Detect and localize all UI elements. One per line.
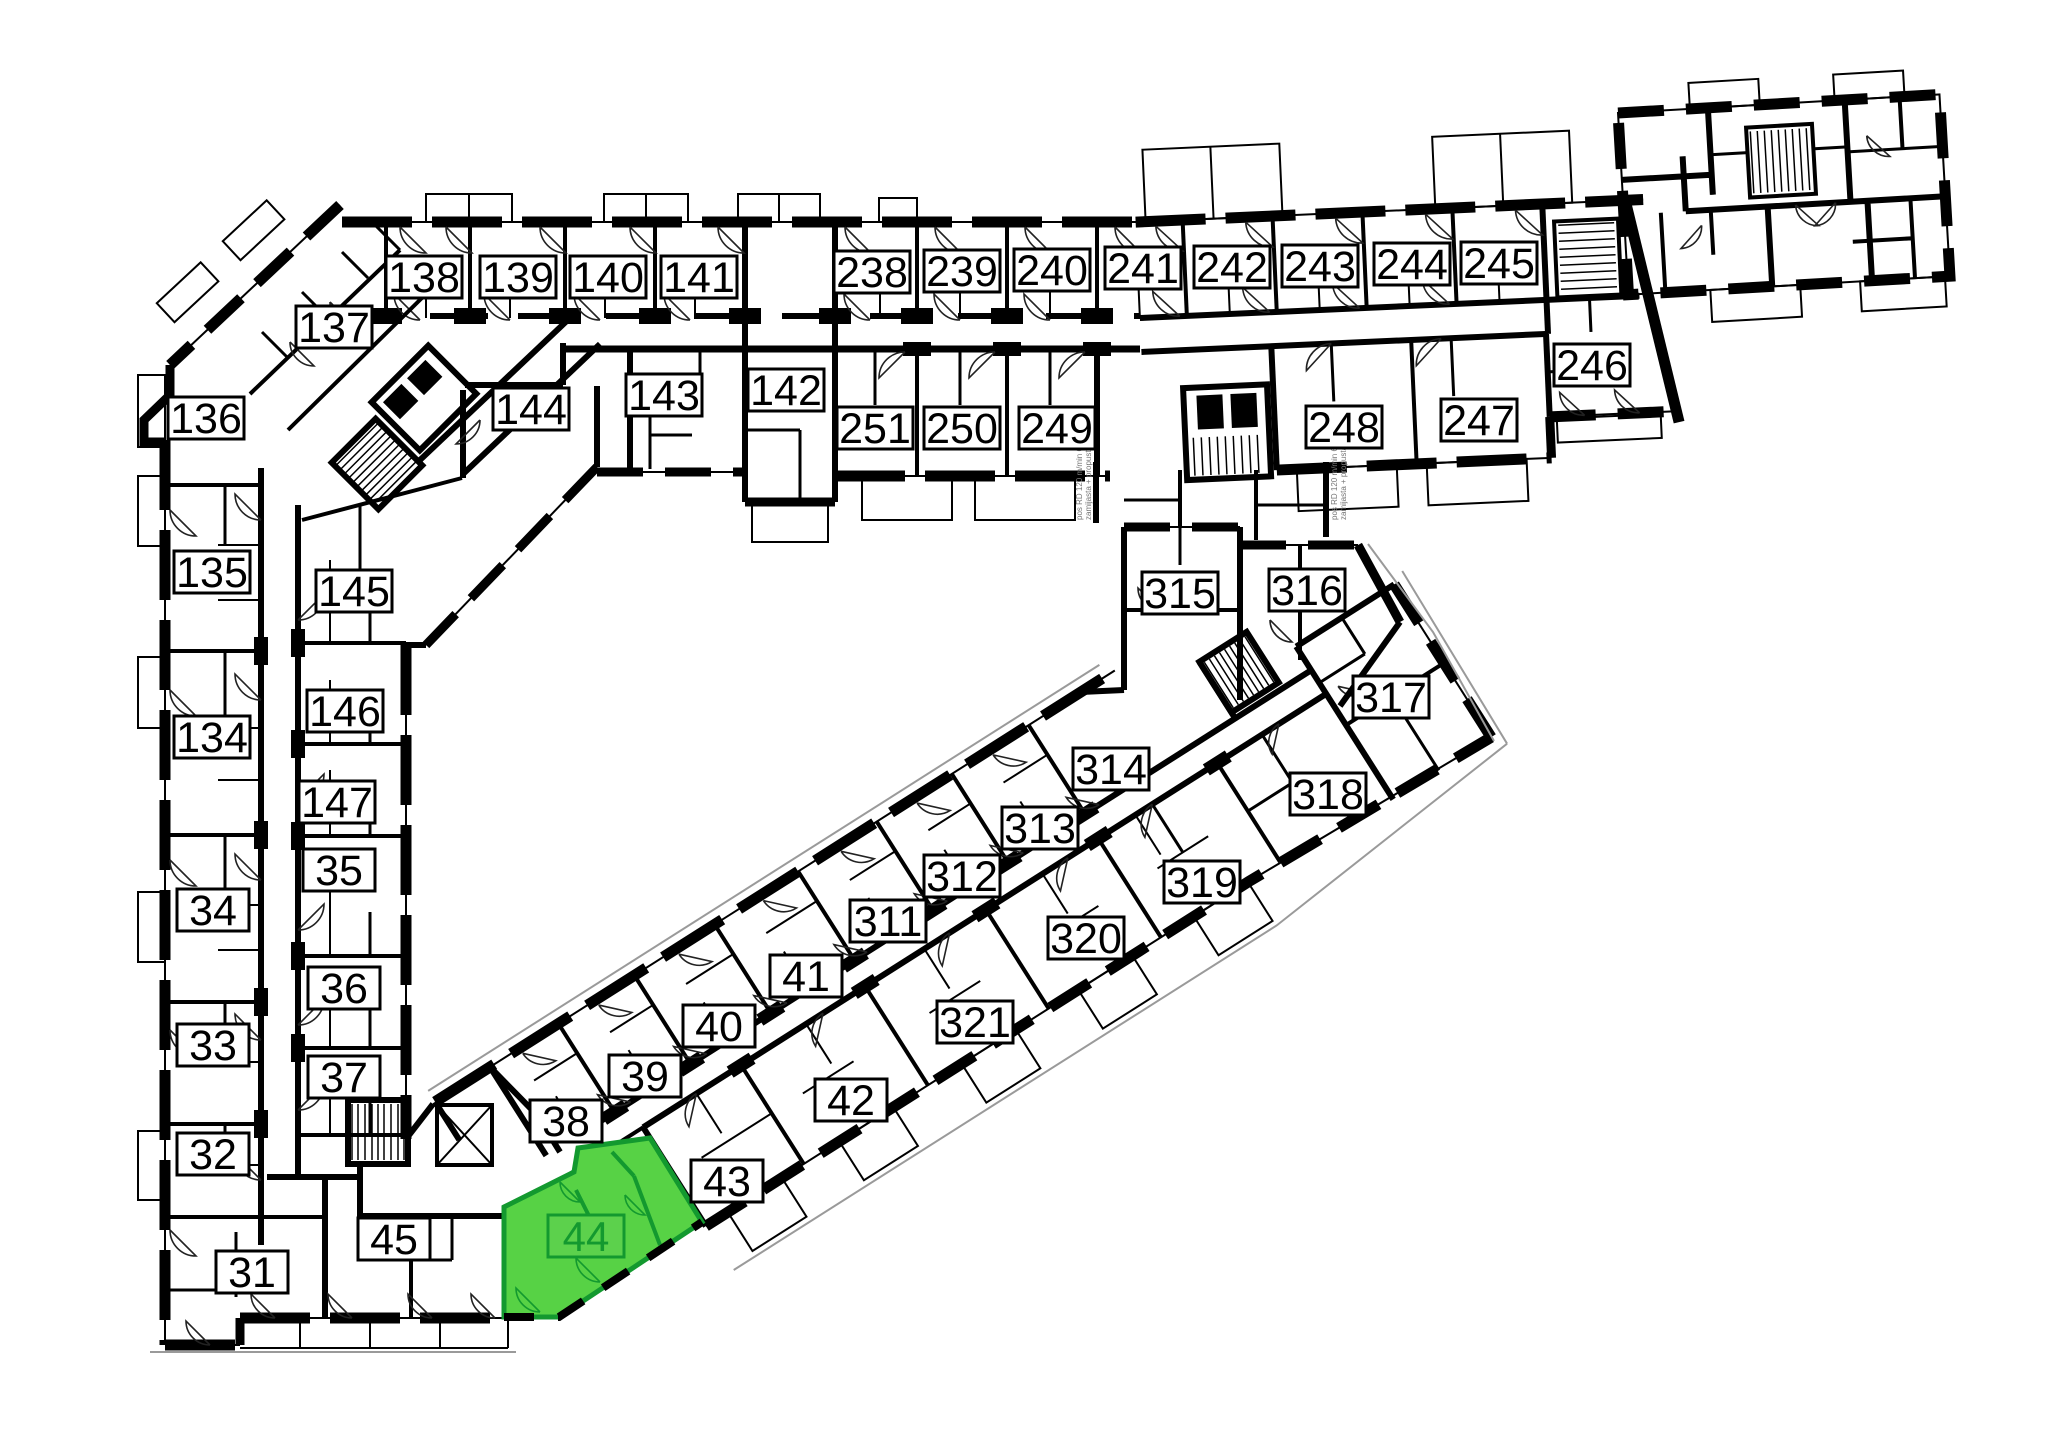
svg-text:42: 42	[827, 1077, 875, 1125]
svg-text:248: 248	[1308, 404, 1380, 452]
svg-text:313: 313	[1004, 805, 1076, 853]
svg-text:36: 36	[320, 965, 368, 1013]
svg-text:147: 147	[301, 779, 373, 827]
svg-text:38: 38	[542, 1098, 590, 1146]
svg-text:142: 142	[750, 367, 822, 415]
svg-text:241: 241	[1107, 245, 1179, 293]
svg-text:317: 317	[1355, 674, 1427, 722]
svg-text:141: 141	[663, 254, 735, 302]
svg-text:31: 31	[228, 1249, 276, 1297]
svg-text:146: 146	[309, 688, 381, 736]
svg-text:311: 311	[854, 898, 923, 946]
svg-text:zamijasta + propusta: zamijasta + propusta	[1084, 445, 1093, 520]
svg-text:40: 40	[695, 1003, 743, 1051]
svg-text:134: 134	[176, 714, 248, 762]
svg-text:35: 35	[315, 847, 363, 895]
svg-text:136: 136	[170, 395, 242, 443]
svg-text:315: 315	[1144, 570, 1216, 618]
svg-text:32: 32	[189, 1131, 237, 1179]
svg-text:246: 246	[1556, 342, 1628, 390]
svg-text:318: 318	[1292, 771, 1364, 819]
svg-text:39: 39	[621, 1053, 669, 1101]
svg-text:242: 242	[1196, 244, 1268, 292]
svg-text:243: 243	[1284, 243, 1356, 291]
svg-text:145: 145	[318, 568, 390, 616]
svg-text:43: 43	[703, 1158, 751, 1206]
svg-text:138: 138	[388, 254, 460, 302]
svg-text:143: 143	[628, 372, 700, 420]
svg-text:41: 41	[782, 953, 830, 1001]
svg-text:251: 251	[839, 405, 911, 453]
svg-text:144: 144	[495, 386, 567, 434]
svg-text:37: 37	[320, 1054, 368, 1102]
svg-text:44: 44	[563, 1213, 610, 1260]
svg-text:314: 314	[1075, 746, 1147, 794]
svg-text:238: 238	[836, 249, 908, 297]
svg-text:245: 245	[1463, 240, 1535, 288]
svg-text:321: 321	[939, 999, 1011, 1047]
svg-text:45: 45	[370, 1216, 418, 1264]
svg-text:140: 140	[572, 254, 644, 302]
svg-text:34: 34	[189, 887, 237, 935]
svg-text:312: 312	[926, 853, 998, 901]
svg-text:249: 249	[1021, 405, 1093, 453]
svg-text:239: 239	[926, 248, 998, 296]
svg-text:320: 320	[1050, 915, 1122, 963]
svg-text:250: 250	[926, 405, 998, 453]
svg-text:247: 247	[1443, 397, 1515, 445]
svg-text:139: 139	[482, 254, 554, 302]
svg-text:316: 316	[1271, 567, 1343, 615]
svg-text:zamijasta + propusta: zamijasta + propusta	[1339, 445, 1348, 520]
svg-text:137: 137	[298, 304, 370, 352]
svg-text:33: 33	[189, 1022, 237, 1070]
svg-text:240: 240	[1016, 247, 1088, 295]
svg-text:319: 319	[1166, 859, 1238, 907]
svg-text:244: 244	[1376, 241, 1448, 289]
svg-text:135: 135	[176, 549, 248, 597]
